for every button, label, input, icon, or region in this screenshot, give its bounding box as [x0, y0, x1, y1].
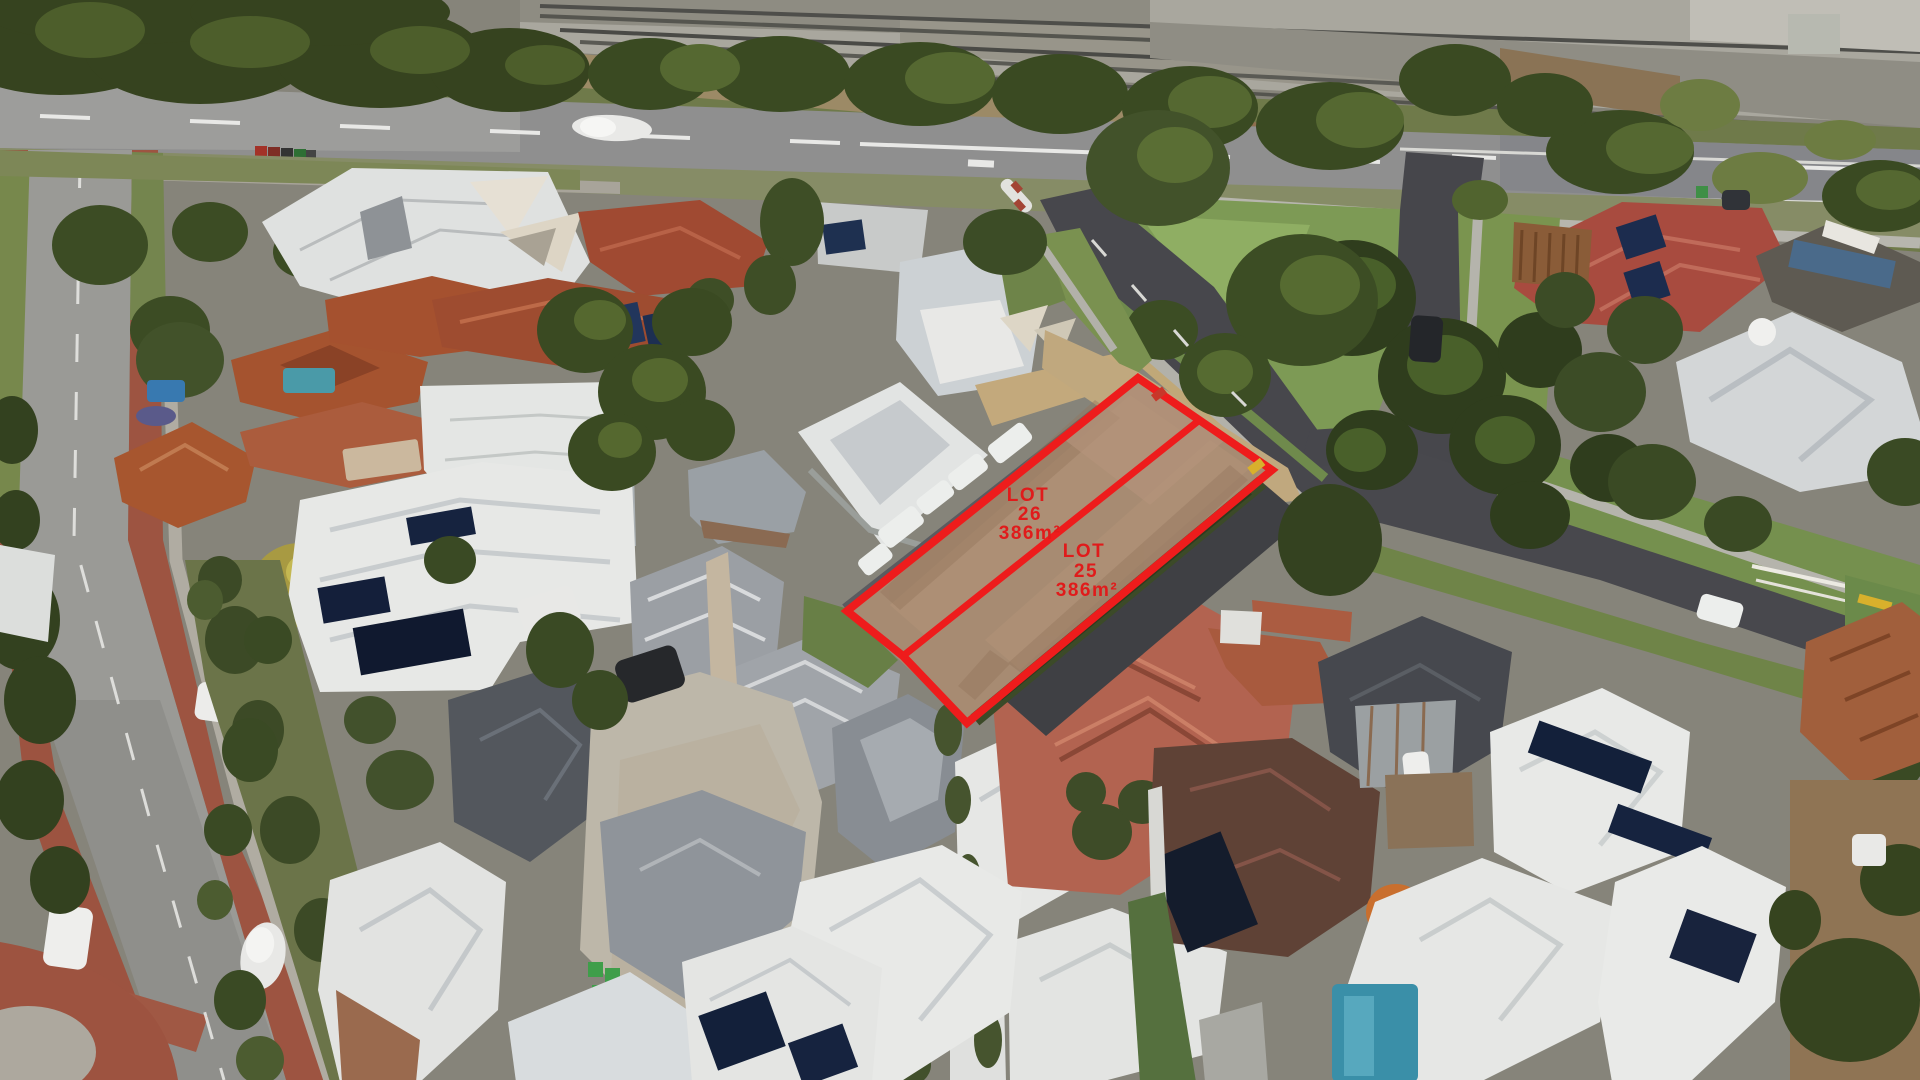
svg-text:386m²: 386m²	[999, 523, 1061, 544]
svg-text:25: 25	[1074, 561, 1098, 582]
svg-text:LOT: LOT	[1007, 485, 1050, 506]
svg-text:26: 26	[1018, 504, 1042, 525]
svg-text:386m²: 386m²	[1056, 580, 1118, 601]
svg-text:LOT: LOT	[1063, 541, 1106, 562]
